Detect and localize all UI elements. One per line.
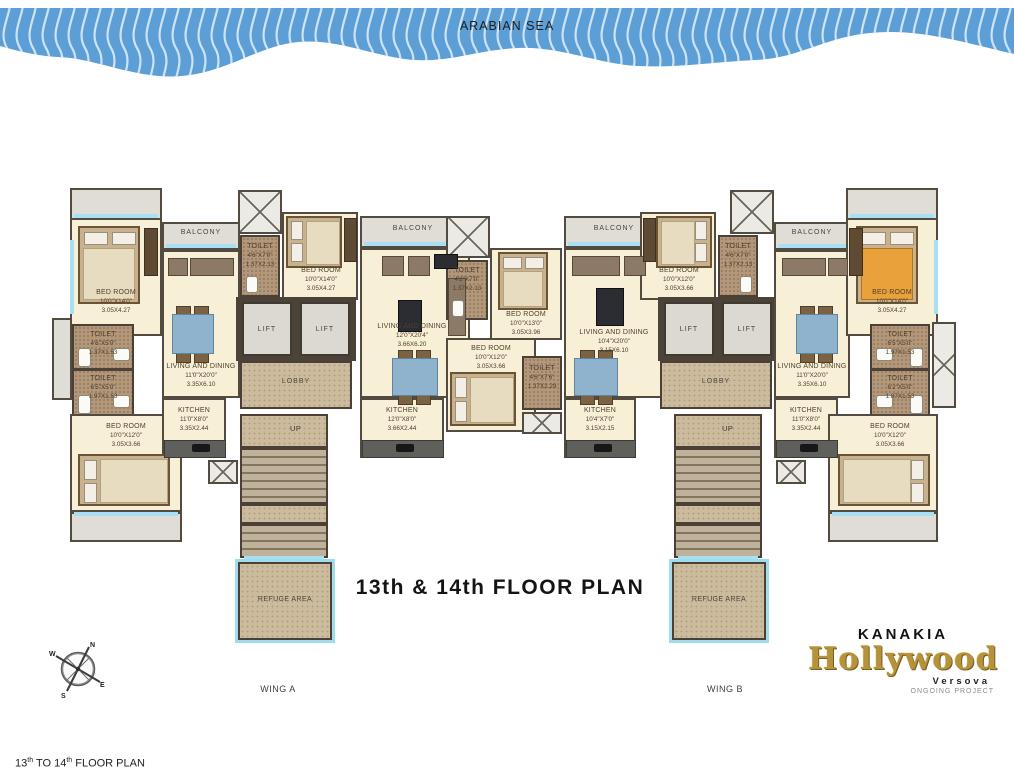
toilet-fixture-icon	[246, 276, 258, 293]
up-label-a: UP	[290, 424, 301, 433]
lift-2: LIFT	[300, 302, 350, 356]
toilet-fixture-icon	[452, 300, 464, 317]
balcony-area	[70, 512, 182, 542]
wall	[72, 368, 134, 371]
wall	[870, 368, 930, 371]
window-sill	[778, 244, 846, 248]
hob-icon	[396, 444, 414, 452]
stairs-a-lower	[240, 524, 328, 558]
room-label-toilet-b3: TOILET6'2"X5'0"1.87X1.53	[872, 374, 928, 401]
balcony-label-a: BALCONY	[162, 229, 240, 236]
hob-icon	[800, 444, 818, 452]
plan-title: 13th & 14th FLOOR PLAN	[330, 576, 670, 600]
sofa-icon	[782, 258, 826, 276]
logo-location: Versova	[808, 676, 998, 687]
room-label-living-c2: LIVING AND DINING10'4"X20'0"3.15X6.10	[566, 328, 662, 355]
lobby-label-b: LOBBY	[660, 378, 772, 385]
room-label-toilet-a3: TOILET4'6"X7'0"1.37X2.13	[240, 242, 280, 269]
compass-rose: N W E S	[47, 638, 109, 700]
stairs-b-lower	[674, 524, 762, 558]
shaft	[730, 190, 774, 234]
caption-part: FLOOR PLAN	[72, 758, 145, 770]
kanakia-hollywood-logo: KANAKIA Hollywood Versova ONGOING PROJEC…	[808, 626, 998, 695]
toilet-fixture-icon	[740, 276, 752, 293]
compass-w: W	[49, 651, 56, 658]
room-label-bedroom-b3: BED ROOM10'0"X12'0"3.05X3.66	[850, 422, 930, 449]
caption-part: TO 14	[33, 758, 66, 770]
sofa-icon	[572, 256, 620, 276]
stair-landing	[240, 414, 328, 448]
balcony-label-c2: BALCONY	[564, 225, 664, 232]
refuge-label-b: REFUGE AREA	[672, 596, 766, 603]
stair-landing	[240, 504, 328, 524]
bed-icon	[838, 454, 930, 506]
floor-plan-page: { "sea": { "label": "ARABIAN SEA" }, "ti…	[0, 0, 1014, 779]
refuge-label-a: REFUGE AREA	[238, 596, 332, 603]
room-label-bedroom-c1: BED ROOM10'0"X13'0"3.05X3.96	[492, 310, 560, 337]
armchair-icon	[168, 258, 188, 276]
stairs-a	[240, 448, 328, 504]
logo-name: Hollywood	[808, 643, 998, 676]
hob-icon	[192, 444, 210, 452]
room-label-bedroom-a1: BED ROOM10'0"X14'0"3.05X4.27	[74, 288, 158, 315]
shaft	[932, 322, 956, 408]
room-label-toilet-c1: TOILET4'2"X7'0"1.37X2.13	[446, 266, 488, 293]
caption-part: 13	[15, 758, 27, 770]
dining-table-icon	[796, 314, 838, 354]
hob-icon	[594, 444, 612, 452]
bed-icon	[498, 252, 548, 310]
sea-label: ARABIAN SEA	[460, 19, 554, 33]
window-sill	[832, 512, 934, 516]
wardrobe-icon	[849, 228, 863, 276]
ledge	[52, 318, 72, 400]
room-label-kitchen-b: KITCHEN11'0"X8'0"3.35X2.44	[776, 406, 836, 433]
room-label-living-b: LIVING AND DINING11'0"X20'0"3.35X6.10	[776, 362, 848, 389]
room-label-kitchen-c2: KITCHEN10'4"X7'0"3.15X2.15	[568, 406, 632, 433]
stairs-b	[674, 448, 762, 504]
window-sill	[244, 556, 324, 560]
balcony-label-c1: BALCONY	[360, 225, 466, 232]
dining-table-icon	[392, 358, 438, 396]
wing-b-label: WING B	[690, 684, 760, 694]
compass-e: E	[100, 682, 105, 689]
window-sill	[678, 556, 758, 560]
shaft	[446, 216, 490, 258]
armchair-icon	[408, 256, 430, 276]
room-label-toilet-a2: TOILET6'5"X5'0"1.97X1.53	[74, 374, 132, 401]
compass-n: N	[90, 642, 95, 649]
room-label-bedroom-a2: BED ROOM10'0"X12'0"3.05X3.66	[86, 422, 166, 449]
room-label-living-c1: LIVING AND DINING12'0"X20'4"3.66X6.20	[362, 322, 462, 349]
tv-unit-icon	[596, 288, 624, 326]
room-label-kitchen-c1: KITCHEN12'0"X8'0"3.66X2.44	[368, 406, 436, 433]
stair-landing	[674, 414, 762, 448]
shaft	[238, 190, 282, 234]
footer-caption: 13th TO 14th FLOOR PLAN	[15, 757, 145, 770]
lift-4: LIFT	[722, 302, 772, 356]
up-label-b: UP	[722, 424, 733, 433]
compass-s: S	[61, 693, 66, 700]
balcony-label-b: BALCONY	[774, 229, 850, 236]
logo-status: ONGOING PROJECT	[808, 688, 998, 695]
bed-icon	[78, 454, 170, 506]
stair-landing	[674, 504, 762, 524]
dining-table-icon	[172, 314, 214, 354]
shaft	[522, 412, 562, 434]
shaft	[208, 460, 238, 484]
sofa-icon	[190, 258, 234, 276]
shaft	[776, 460, 806, 484]
balcony-area	[828, 512, 938, 542]
lift-3: LIFT	[664, 302, 714, 356]
lift-1: LIFT	[242, 302, 292, 356]
lobby-b	[660, 361, 772, 409]
room-label-kitchen-a: KITCHEN11'0"X8'0"3.35X2.44	[164, 406, 224, 433]
window-sill	[934, 240, 938, 314]
armchair-icon	[382, 256, 404, 276]
room-label-bedroom-b2: BED ROOM10'0"X14'0"3.05X4.27	[850, 288, 934, 315]
bed-icon	[656, 216, 712, 268]
dining-table-icon	[574, 358, 618, 396]
room-label-bedroom-b1: BED ROOM10'0"X12'0"3.05X3.66	[644, 266, 714, 293]
room-label-toilet-a1: TOILET4'6"X5'0"1.37X1.53	[74, 330, 132, 357]
lobby-label-a: LOBBY	[240, 378, 352, 385]
window-sill	[166, 244, 236, 248]
wardrobe-icon	[144, 228, 158, 276]
armchair-icon	[828, 258, 848, 276]
room-label-bedroom-a3: BED ROOM10'0"X14'0"3.05X4.27	[286, 266, 356, 293]
room-label-living-a: LIVING AND DINING11'0"X20'0"3.35X6.10	[164, 362, 238, 389]
bed-icon	[286, 216, 342, 268]
window-sill	[74, 512, 178, 516]
room-label-toilet-c2: TOILET4'6"X7'6"1.37X2.29	[522, 364, 562, 391]
arabian-sea-band: ARABIAN SEA	[0, 0, 1014, 125]
room-label-bedroom-c2: BED ROOM10'0"X12'0"3.05X3.66	[456, 344, 526, 371]
wing-a-label: WING A	[243, 684, 313, 694]
lobby-a	[240, 361, 352, 409]
wardrobe-icon	[344, 218, 357, 262]
room-label-toilet-b2: TOILET6'5"X5'0"1.97X1.53	[872, 330, 928, 357]
bed-icon	[450, 372, 516, 426]
room-label-toilet-b1: TOILET4'6"X7'0"1.37X2.13	[718, 242, 758, 269]
